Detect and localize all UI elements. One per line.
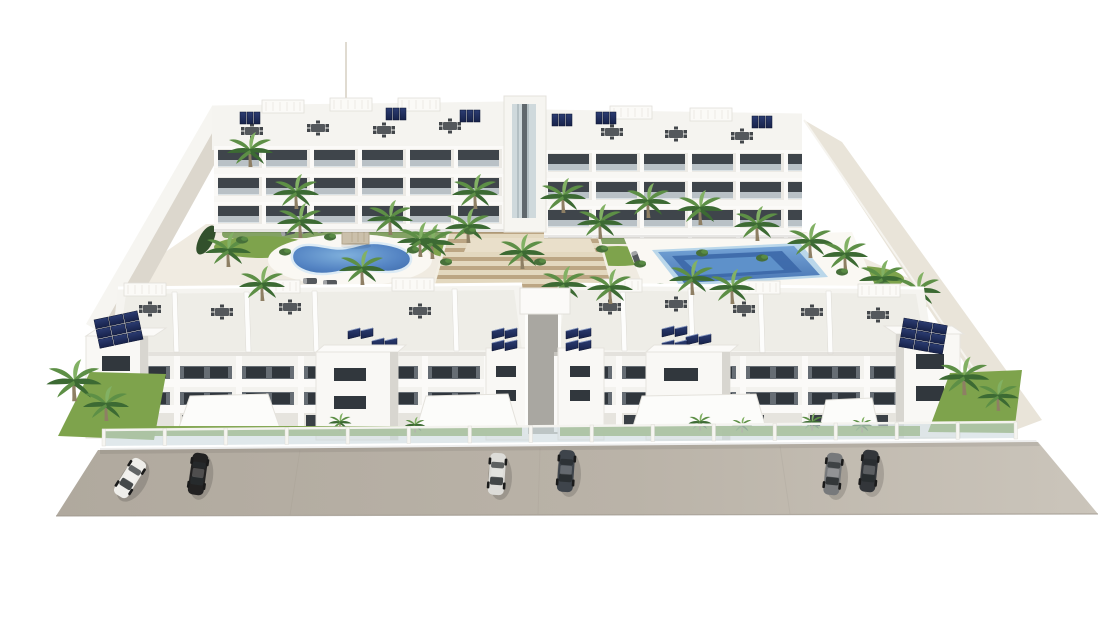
roof-pergola-box xyxy=(262,100,304,113)
bush xyxy=(407,246,419,253)
bush xyxy=(324,233,336,240)
solar-panel-array xyxy=(596,112,616,124)
bush xyxy=(236,236,248,243)
roof-pergola-box xyxy=(610,106,652,119)
bush xyxy=(634,260,646,267)
passage-floor xyxy=(528,312,558,434)
bush xyxy=(696,249,708,256)
roof-pergola-box xyxy=(690,108,732,121)
mid-stair-tower xyxy=(316,345,406,440)
central-lift-tower xyxy=(504,96,546,232)
sun-lounger xyxy=(303,278,317,284)
roof-pergola-box xyxy=(392,278,434,291)
solar-panel-array xyxy=(386,108,406,120)
render-canvas xyxy=(0,0,1110,626)
solar-panel-array xyxy=(752,116,772,128)
walkway-bridge xyxy=(520,288,570,314)
ground-shadow xyxy=(544,235,802,239)
lift-shaft-slot xyxy=(522,104,527,218)
architectural-render xyxy=(0,0,1110,626)
awning xyxy=(178,394,280,430)
solar-panel-array xyxy=(460,110,480,122)
bush xyxy=(596,245,608,252)
roof-pergola-box xyxy=(330,98,372,111)
car-silver-sedan xyxy=(486,452,507,495)
solar-panel-array xyxy=(240,112,260,124)
roof-pergola-box xyxy=(858,284,900,297)
bush xyxy=(756,254,768,261)
awning xyxy=(416,394,518,430)
solar-panel-array xyxy=(552,114,572,126)
rear-left-apartment-block xyxy=(212,98,506,233)
car-graphite-suv xyxy=(555,449,576,492)
bush xyxy=(440,258,452,265)
bush xyxy=(534,258,546,265)
bush xyxy=(836,268,848,275)
bush xyxy=(464,227,476,234)
bush xyxy=(279,248,291,255)
roof-pergola-box xyxy=(124,283,166,296)
